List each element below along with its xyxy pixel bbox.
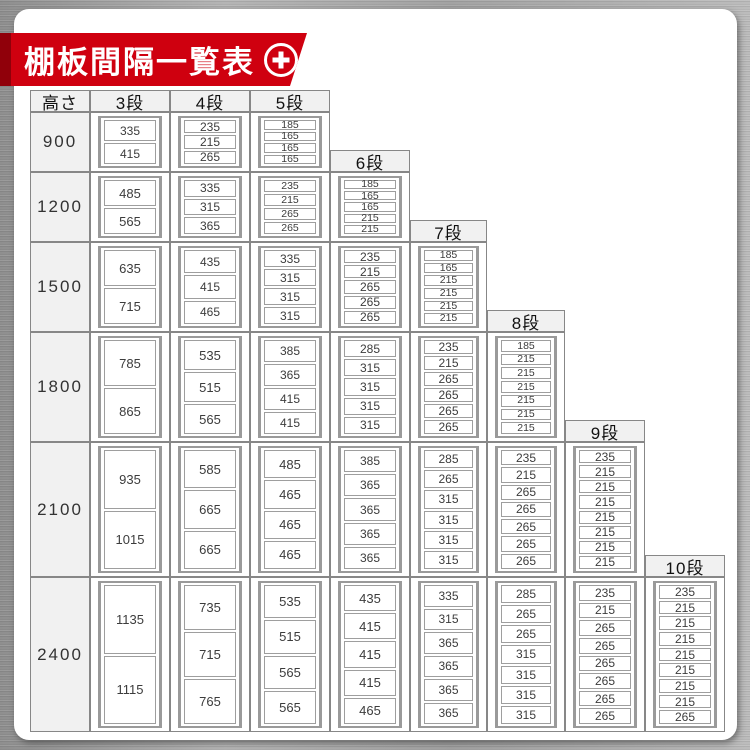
interval-box: 315 bbox=[501, 706, 551, 724]
interval-box: 215 bbox=[659, 616, 711, 630]
interval-box: 265 bbox=[501, 605, 551, 623]
interval-box: 415 bbox=[184, 275, 236, 298]
interval-box: 215 bbox=[659, 679, 711, 693]
cell-1500-3dan: 635715 bbox=[90, 242, 170, 332]
interval-box: 365 bbox=[184, 217, 236, 234]
interval-box: 465 bbox=[344, 698, 396, 724]
interval-box: 265 bbox=[424, 372, 473, 386]
interval-box: 165 bbox=[264, 132, 316, 142]
cell-1800-8dan: 185215215215215215215 bbox=[487, 332, 565, 442]
interval-box: 535 bbox=[184, 340, 236, 370]
interval-box: 315 bbox=[344, 359, 396, 376]
interval-box: 265 bbox=[501, 554, 551, 569]
interval-box: 235 bbox=[501, 450, 551, 465]
interval-box: 315 bbox=[501, 666, 551, 684]
interval-box: 635 bbox=[104, 250, 156, 286]
cell-1800-6dan: 285315315315315 bbox=[330, 332, 410, 442]
interval-box: 215 bbox=[501, 354, 551, 366]
cell-2100-4dan: 585665665 bbox=[170, 442, 250, 577]
interval-box: 315 bbox=[344, 398, 396, 415]
infographic-background: 棚板間隔一覧表 高さ900120015001800210024003段33541… bbox=[0, 0, 750, 750]
interval-box: 315 bbox=[501, 686, 551, 704]
interval-box: 315 bbox=[501, 645, 551, 663]
interval-box: 335 bbox=[424, 585, 473, 607]
cell-1500-5dan: 335315315315 bbox=[250, 242, 330, 332]
title-banner: 棚板間隔一覧表 bbox=[0, 33, 307, 86]
shelf-frame: 635715 bbox=[98, 246, 162, 328]
cell-1500-4dan: 435415465 bbox=[170, 242, 250, 332]
interval-box: 215 bbox=[659, 648, 711, 662]
shelf-frame: 335315365365365365 bbox=[418, 581, 479, 728]
interval-box: 215 bbox=[424, 356, 473, 370]
interval-box: 235 bbox=[424, 340, 473, 354]
col-header-10dan: 10段 bbox=[645, 555, 725, 577]
interval-box: 215 bbox=[579, 603, 631, 619]
cell-1200-3dan: 485565 bbox=[90, 172, 170, 242]
interval-box: 585 bbox=[184, 450, 236, 488]
interval-box: 365 bbox=[424, 679, 473, 701]
interval-box: 215 bbox=[501, 467, 551, 482]
shelf-frame: 385365415415 bbox=[258, 336, 322, 438]
interval-box: 265 bbox=[424, 470, 473, 488]
cell-2100-7dan: 285265315315315315 bbox=[410, 442, 487, 577]
interval-box: 215 bbox=[344, 225, 396, 234]
interval-box: 265 bbox=[184, 151, 236, 164]
interval-box: 215 bbox=[424, 288, 473, 299]
interval-box: 215 bbox=[659, 663, 711, 677]
cell-1500-6dan: 235215265265265 bbox=[330, 242, 410, 332]
interval-box: 865 bbox=[104, 388, 156, 434]
interval-box: 215 bbox=[659, 695, 711, 709]
interval-box: 265 bbox=[579, 620, 631, 636]
cell-2400-5dan: 535515565565 bbox=[250, 577, 330, 732]
shelf-frame: 185165165215215 bbox=[338, 176, 402, 238]
interval-box: 315 bbox=[264, 307, 316, 324]
shelf-frame: 335415 bbox=[98, 116, 162, 168]
page-title: 棚板間隔一覧表 bbox=[24, 37, 255, 82]
shelf-frame: 435415415415465 bbox=[338, 581, 402, 728]
col-header-5dan: 5段 bbox=[250, 90, 330, 112]
shelf-frame: 11351115 bbox=[98, 581, 162, 728]
interval-box: 265 bbox=[501, 536, 551, 551]
interval-box: 265 bbox=[579, 691, 631, 707]
shelf-frame: 235215265265 bbox=[258, 176, 322, 238]
interval-box: 315 bbox=[344, 378, 396, 395]
interval-box: 715 bbox=[184, 632, 236, 677]
interval-box: 265 bbox=[501, 502, 551, 517]
interval-box: 235 bbox=[344, 250, 396, 263]
interval-box: 565 bbox=[104, 208, 156, 234]
interval-box: 265 bbox=[501, 625, 551, 643]
interval-box: 215 bbox=[579, 465, 631, 478]
col-header-9dan: 9段 bbox=[565, 420, 645, 442]
interval-box: 265 bbox=[579, 673, 631, 689]
interval-box: 265 bbox=[579, 638, 631, 654]
interval-box: 265 bbox=[344, 280, 396, 293]
interval-box: 315 bbox=[264, 288, 316, 305]
shelf-frame: 785865 bbox=[98, 336, 162, 438]
height-cell-900: 900 bbox=[30, 112, 90, 172]
interval-box: 315 bbox=[424, 490, 473, 508]
cell-2400-6dan: 435415415415465 bbox=[330, 577, 410, 732]
cell-1200-4dan: 335315365 bbox=[170, 172, 250, 242]
interval-box: 365 bbox=[344, 523, 396, 545]
interval-box: 215 bbox=[344, 214, 396, 223]
interval-box: 365 bbox=[424, 703, 473, 725]
interval-box: 365 bbox=[424, 656, 473, 678]
interval-box: 235 bbox=[659, 585, 711, 599]
shelf-frame: 485565 bbox=[98, 176, 162, 238]
shelf-frame: 335315315315 bbox=[258, 246, 322, 328]
interval-box: 215 bbox=[659, 601, 711, 615]
shelf-frame: 235215265265265265265 bbox=[495, 446, 557, 573]
height-cell-1500: 1500 bbox=[30, 242, 90, 332]
shelf-frame: 735715765 bbox=[178, 581, 242, 728]
height-cell-2400: 2400 bbox=[30, 577, 90, 732]
col-header-3dan: 3段 bbox=[90, 90, 170, 112]
interval-box: 215 bbox=[659, 632, 711, 646]
interval-box: 315 bbox=[184, 199, 236, 216]
interval-box: 215 bbox=[579, 480, 631, 493]
interval-box: 515 bbox=[264, 620, 316, 653]
interval-box: 235 bbox=[184, 120, 236, 133]
interval-box: 185 bbox=[264, 120, 316, 130]
cell-2400-8dan: 285265265315315315315 bbox=[487, 577, 565, 732]
col-header-4dan: 4段 bbox=[170, 90, 250, 112]
interval-box: 185 bbox=[501, 340, 551, 352]
interval-box: 165 bbox=[264, 155, 316, 165]
shelf-frame: 235215215215215215215215 bbox=[573, 446, 637, 573]
cell-1800-4dan: 535515565 bbox=[170, 332, 250, 442]
interval-box: 285 bbox=[501, 585, 551, 603]
interval-box: 215 bbox=[579, 541, 631, 554]
cell-2100-5dan: 485465465465 bbox=[250, 442, 330, 577]
shelf-frame: 585665665 bbox=[178, 446, 242, 573]
interval-box: 215 bbox=[264, 194, 316, 206]
shelf-frame: 285265265315315315315 bbox=[495, 581, 557, 728]
interval-box: 315 bbox=[424, 531, 473, 549]
interval-box: 1115 bbox=[104, 656, 156, 725]
cell-1200-6dan: 185165165215215 bbox=[330, 172, 410, 242]
interval-box: 935 bbox=[104, 450, 156, 509]
interval-box: 165 bbox=[264, 143, 316, 153]
interval-box: 415 bbox=[344, 670, 396, 696]
cell-2400-3dan: 11351115 bbox=[90, 577, 170, 732]
cell-2400-4dan: 735715765 bbox=[170, 577, 250, 732]
interval-box: 665 bbox=[184, 490, 236, 528]
height-cell-1800: 1800 bbox=[30, 332, 90, 442]
height-cell-1200: 1200 bbox=[30, 172, 90, 242]
interval-box: 265 bbox=[579, 708, 631, 724]
interval-box: 215 bbox=[579, 495, 631, 508]
interval-box: 1015 bbox=[104, 511, 156, 570]
interval-box: 335 bbox=[104, 120, 156, 141]
interval-box: 485 bbox=[264, 450, 316, 478]
interval-box: 565 bbox=[264, 656, 316, 689]
interval-box: 715 bbox=[104, 288, 156, 324]
interval-box: 335 bbox=[184, 180, 236, 197]
shelf-frame: 185215215215215215215 bbox=[495, 336, 557, 438]
cell-2100-3dan: 9351015 bbox=[90, 442, 170, 577]
shelf-frame: 285265315315315315 bbox=[418, 446, 479, 573]
cell-2400-9dan: 235215265265265265265265 bbox=[565, 577, 645, 732]
cell-2100-9dan: 235215215215215215215215 bbox=[565, 442, 645, 577]
interval-box: 215 bbox=[501, 395, 551, 407]
interval-box: 215 bbox=[501, 422, 551, 434]
shelf-frame: 235215265265265 bbox=[338, 246, 402, 328]
col-header-6dan: 6段 bbox=[330, 150, 410, 172]
interval-box: 165 bbox=[344, 202, 396, 211]
interval-box: 215 bbox=[184, 135, 236, 148]
interval-box: 765 bbox=[184, 679, 236, 724]
shelf-frame: 285315315315315 bbox=[338, 336, 402, 438]
interval-box: 335 bbox=[264, 250, 316, 267]
interval-box: 365 bbox=[264, 364, 316, 386]
interval-box: 215 bbox=[424, 301, 473, 312]
interval-box: 285 bbox=[344, 340, 396, 357]
interval-box: 215 bbox=[501, 381, 551, 393]
cell-2100-6dan: 385365365365365 bbox=[330, 442, 410, 577]
interval-box: 465 bbox=[264, 541, 316, 569]
interval-box: 435 bbox=[184, 250, 236, 273]
col-header-7dan: 7段 bbox=[410, 220, 487, 242]
cell-1500-7dan: 185165215215215215 bbox=[410, 242, 487, 332]
interval-box: 185 bbox=[344, 180, 396, 189]
interval-box: 415 bbox=[264, 388, 316, 410]
interval-box: 285 bbox=[424, 450, 473, 468]
cell-2400-7dan: 335315365365365365 bbox=[410, 577, 487, 732]
interval-box: 235 bbox=[579, 450, 631, 463]
interval-box: 485 bbox=[104, 180, 156, 206]
cell-1800-3dan: 785865 bbox=[90, 332, 170, 442]
col-header-8dan: 8段 bbox=[487, 310, 565, 332]
interval-box: 315 bbox=[424, 511, 473, 529]
cell-1800-7dan: 235215265265265265 bbox=[410, 332, 487, 442]
shelf-frame: 385365365365365 bbox=[338, 446, 402, 573]
interval-box: 465 bbox=[184, 301, 236, 324]
interval-box: 215 bbox=[579, 511, 631, 524]
interval-box: 315 bbox=[424, 609, 473, 631]
shelf-frame: 485465465465 bbox=[258, 446, 322, 573]
interval-box: 215 bbox=[501, 367, 551, 379]
interval-box: 565 bbox=[184, 404, 236, 434]
interval-box: 315 bbox=[264, 269, 316, 286]
shelf-frame: 185165215215215215 bbox=[418, 246, 479, 328]
shelf-frame: 235215265265265265265265 bbox=[573, 581, 637, 728]
interval-box: 535 bbox=[264, 585, 316, 618]
interval-box: 315 bbox=[424, 551, 473, 569]
cell-900-3dan: 335415 bbox=[90, 112, 170, 172]
interval-box: 235 bbox=[579, 585, 631, 601]
interval-box: 265 bbox=[264, 208, 316, 220]
cell-1800-5dan: 385365415415 bbox=[250, 332, 330, 442]
interval-box: 265 bbox=[424, 420, 473, 434]
interval-box: 365 bbox=[344, 547, 396, 569]
shelf-frame: 535515565565 bbox=[258, 581, 322, 728]
shelf-frame: 435415465 bbox=[178, 246, 242, 328]
interval-box: 515 bbox=[184, 372, 236, 402]
plus-icon[interactable] bbox=[264, 43, 298, 77]
corner-header-takasa: 高さ bbox=[30, 90, 90, 112]
interval-box: 265 bbox=[579, 656, 631, 672]
shelf-frame: 185165165165 bbox=[258, 116, 322, 168]
interval-box: 265 bbox=[344, 296, 396, 309]
shelf-frame: 535515565 bbox=[178, 336, 242, 438]
height-cell-2100: 2100 bbox=[30, 442, 90, 577]
interval-box: 415 bbox=[264, 412, 316, 434]
interval-box: 415 bbox=[344, 613, 396, 639]
interval-box: 315 bbox=[344, 417, 396, 434]
shelf-spacing-table: 高さ900120015001800210024003段3354154855656… bbox=[30, 90, 725, 732]
interval-box: 215 bbox=[424, 275, 473, 286]
interval-box: 465 bbox=[264, 480, 316, 508]
interval-box: 215 bbox=[501, 409, 551, 421]
interval-box: 365 bbox=[344, 474, 396, 496]
interval-box: 385 bbox=[264, 340, 316, 362]
shelf-frame: 9351015 bbox=[98, 446, 162, 573]
shelf-frame: 235215215215215215215215265 bbox=[653, 581, 717, 728]
interval-box: 385 bbox=[344, 450, 396, 472]
interval-box: 265 bbox=[344, 311, 396, 324]
interval-box: 265 bbox=[659, 710, 711, 724]
interval-box: 215 bbox=[424, 313, 473, 324]
interval-box: 365 bbox=[424, 632, 473, 654]
interval-box: 365 bbox=[344, 498, 396, 520]
interval-box: 785 bbox=[104, 340, 156, 386]
shelf-frame: 235215265 bbox=[178, 116, 242, 168]
interval-box: 265 bbox=[424, 388, 473, 402]
interval-box: 435 bbox=[344, 585, 396, 611]
interval-box: 235 bbox=[264, 180, 316, 192]
shelf-frame: 335315365 bbox=[178, 176, 242, 238]
interval-box: 415 bbox=[344, 641, 396, 667]
interval-box: 415 bbox=[104, 143, 156, 164]
interval-box: 1135 bbox=[104, 585, 156, 654]
cell-2400-10dan: 235215215215215215215215265 bbox=[645, 577, 725, 732]
interval-box: 565 bbox=[264, 691, 316, 724]
interval-box: 665 bbox=[184, 531, 236, 569]
interval-box: 265 bbox=[424, 404, 473, 418]
shelf-frame: 235215265265265265 bbox=[418, 336, 479, 438]
interval-box: 165 bbox=[344, 191, 396, 200]
interval-box: 215 bbox=[579, 526, 631, 539]
interval-box: 265 bbox=[264, 222, 316, 234]
interval-box: 215 bbox=[579, 556, 631, 569]
interval-box: 735 bbox=[184, 585, 236, 630]
interval-box: 215 bbox=[344, 265, 396, 278]
cell-1200-5dan: 235215265265 bbox=[250, 172, 330, 242]
interval-box: 165 bbox=[424, 263, 473, 274]
cell-2100-8dan: 235215265265265265265 bbox=[487, 442, 565, 577]
interval-box: 265 bbox=[501, 485, 551, 500]
interval-box: 185 bbox=[424, 250, 473, 261]
cell-900-5dan: 185165165165 bbox=[250, 112, 330, 172]
cell-900-4dan: 235215265 bbox=[170, 112, 250, 172]
interval-box: 465 bbox=[264, 511, 316, 539]
interval-box: 265 bbox=[501, 519, 551, 534]
